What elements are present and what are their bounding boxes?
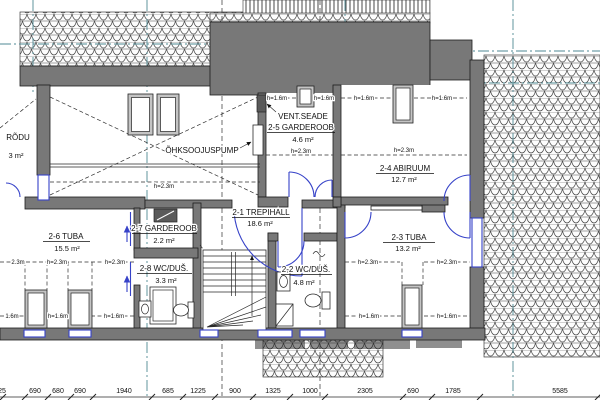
roof-window [68,290,92,328]
dimension-value: 5585 [552,388,568,395]
sliding-doors-2-7-2-8 [127,212,131,296]
room-label-2-3: 2-3 TUBA [392,233,428,242]
dimension-value: 690 [407,388,419,395]
room-area-2-2: 4.8 m² [293,278,315,287]
room-area-2-7: 2.2 m² [153,236,175,245]
height-label: h=2.3m [394,148,414,154]
height-label: 2.3m [11,260,24,266]
height-label: h=1.6m [359,314,379,320]
roof-window [297,86,314,107]
toilet-2-2 [305,292,330,309]
dimension-value: 2305 [357,388,373,395]
roof-window [128,94,153,135]
floor-plan-canvas: 2-1 TREPIHALL 18.6 m² 2-2 WC/DUŠ. 4.8 m²… [0,0,600,400]
dimension-value: 1225 [190,388,206,395]
heat-pump-unit [253,125,263,155]
window [258,330,292,337]
door-2-2 [278,241,304,267]
heat-pump-label: ÕHKSOOJUSPUMP [165,146,238,155]
wall [37,85,50,175]
dimension-value: 690 [74,388,86,395]
wall [258,197,288,207]
room-label-2-5: 2-5 GARDEROOB [268,123,334,132]
height-label: h=2.3m [437,260,457,266]
window [69,330,91,337]
dimension-value: 690 [29,388,41,395]
wall [430,40,472,80]
sink-2-8 [139,301,151,317]
wall [268,233,278,241]
dimension-value: 1940 [116,388,132,395]
shower-2-2 [276,304,293,326]
room-label-2-4: 2-4 ABIRUUM [380,164,431,173]
height-label: h=2.3m [291,149,311,155]
dimension-value: 685 [162,388,174,395]
stairs [203,250,266,330]
room-area-2-3: 13.2 m² [395,244,421,253]
heat-pump-arrow [240,142,251,148]
dimension-chain: 25 690 680 690 1940 685 1225 900 1325 10… [0,388,600,400]
wall [470,267,484,330]
height-label: h=1.6m [354,96,374,102]
dimension-value: 1000 [302,388,318,395]
dimension-value: 680 [52,388,64,395]
roof-tiles-right [484,55,600,357]
room-area-2-5: 4.6 m² [292,135,314,144]
wall [333,85,341,197]
floor-plan-drawing: 2-1 TREPIHALL 18.6 m² 2-2 WC/DUŠ. 4.8 m²… [0,0,600,400]
height-label: h=2.3m [154,184,174,190]
height-label: h=2.3m [105,260,125,266]
window [24,330,45,337]
shower-2-8 [150,287,176,324]
door-balcony [6,183,20,197]
door-2-3-right [444,212,470,238]
thin-wall [371,206,422,210]
roof-hatch-strip [243,0,430,13]
wall [337,202,345,330]
height-label: h=1.6m [432,96,452,102]
roof-window [25,290,47,328]
room-label-2-7: 2-7 GARDEROOB [131,224,197,233]
wall [341,197,448,205]
wall [333,197,341,207]
height-label: h=1.6m [104,314,124,320]
height-label: h=1.6m [48,314,68,320]
dimension-value: 25 [0,388,6,395]
roof-window [402,285,422,328]
room-area-2-4: 12.7 m² [391,175,417,184]
window [402,330,422,337]
room-area-2-6: 15.5 m² [54,244,80,253]
height-label: h=2.3m [47,260,67,266]
roof-window [393,85,413,123]
height-label: h=1.6m [267,96,287,102]
room-label-2-8: 2-8 WC/DUŠ. [140,264,188,273]
room-label-2-2: 2-2 WC/DUŠ. [282,265,330,274]
attic-edge-line [50,164,260,167]
room-area-2-8: 3.3 m² [155,276,177,285]
height-label: h=1.6m [437,314,457,320]
wall [470,60,484,218]
dimension-value: 1325 [265,388,281,395]
window [200,330,218,337]
height-label: h=2.3m [358,260,378,266]
dimension-value: 900 [229,388,241,395]
room-label-2-1: 2-1 TREPIHALL [232,208,290,217]
wall [268,233,276,330]
vent-unit [257,95,266,112]
washer-symbol [313,252,325,257]
room-area-2-1: 18.6 m² [247,219,273,228]
wall [304,233,337,241]
window [300,330,325,337]
wall [210,22,430,95]
balcony-diagonal [0,99,36,128]
room-area-balcony: 3 m² [9,151,25,160]
room-area-2-5 [266,93,333,197]
window [472,218,482,267]
wall [145,200,232,208]
wall [134,248,198,258]
door-2-3-left [345,212,371,238]
toilet-2-8 [174,302,195,318]
height-label: 1.6m [5,314,18,320]
room-label-2-6: 2-6 TUBA [49,232,85,241]
height-label: h=1.6m [314,96,334,102]
roof-window [157,94,179,135]
dimension-value: 1785 [445,388,461,395]
room-label-balcony: RÕDU [6,133,30,142]
vent-label: VENT.SEADE [278,112,328,121]
window [38,175,49,200]
